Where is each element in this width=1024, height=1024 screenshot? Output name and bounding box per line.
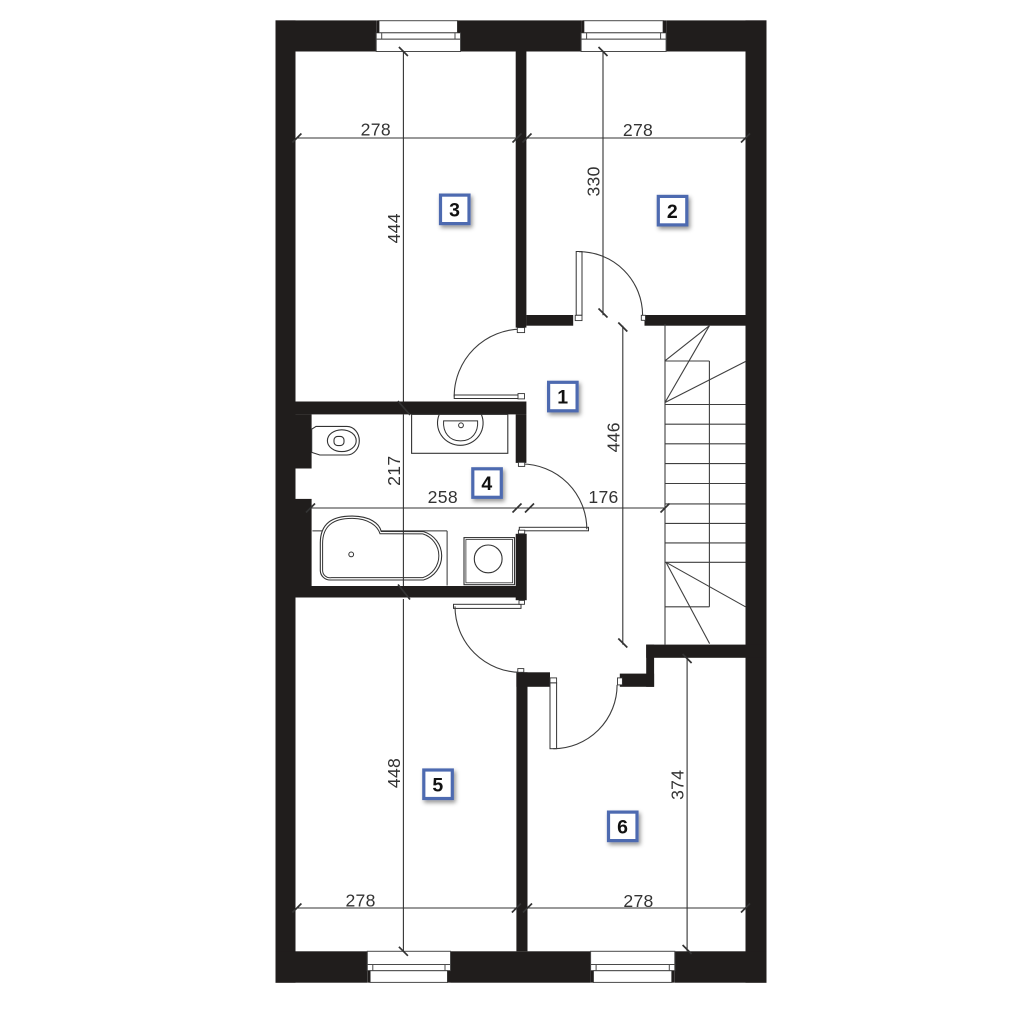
svg-text:330: 330 — [584, 166, 604, 196]
svg-text:176: 176 — [588, 487, 618, 507]
svg-text:4: 4 — [481, 473, 492, 495]
svg-text:1: 1 — [557, 387, 568, 409]
svg-text:217: 217 — [384, 456, 404, 486]
svg-text:444: 444 — [384, 213, 404, 243]
svg-text:5: 5 — [432, 774, 443, 796]
svg-text:278: 278 — [623, 120, 653, 140]
svg-text:278: 278 — [345, 890, 375, 910]
svg-text:278: 278 — [361, 119, 391, 139]
svg-text:446: 446 — [603, 422, 623, 452]
svg-text:448: 448 — [384, 758, 404, 788]
svg-text:278: 278 — [623, 891, 653, 911]
svg-text:3: 3 — [449, 200, 460, 222]
svg-text:2: 2 — [667, 201, 678, 223]
svg-text:374: 374 — [668, 770, 688, 800]
svg-text:258: 258 — [428, 487, 458, 507]
svg-text:6: 6 — [617, 817, 628, 839]
